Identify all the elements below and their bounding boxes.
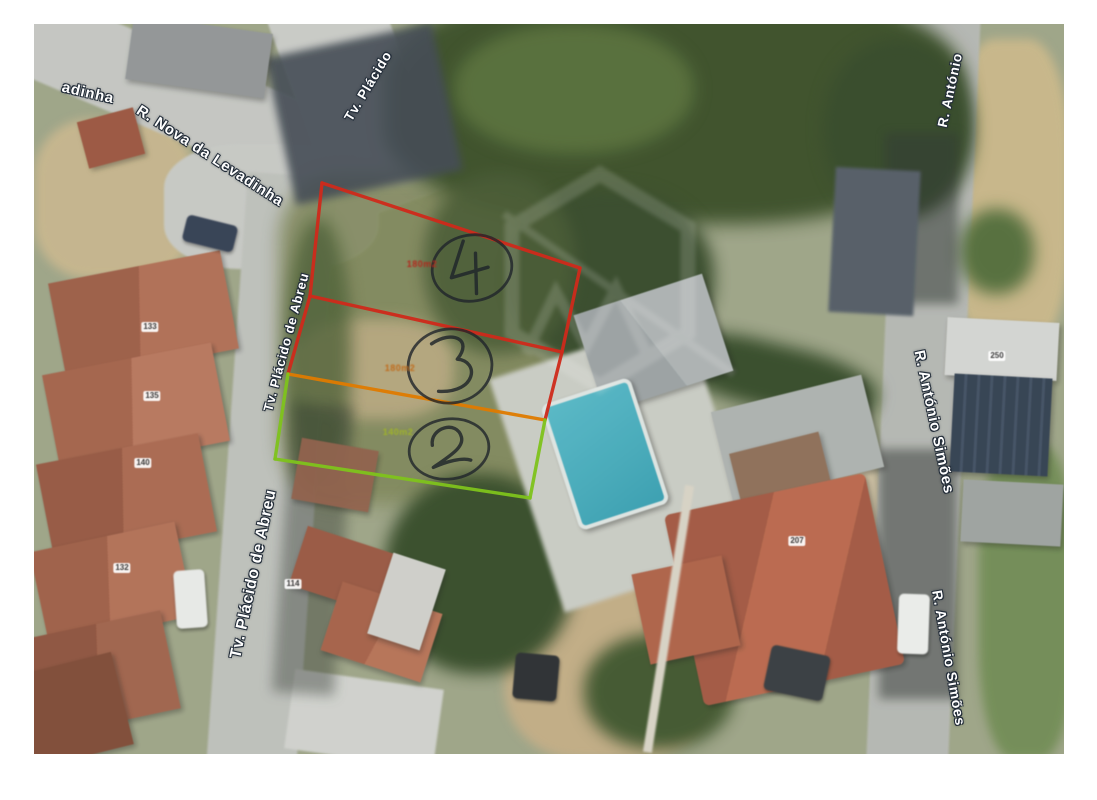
tree-mass-top-light: [454, 24, 694, 154]
building-roof-dark: [828, 167, 920, 316]
van: [897, 593, 930, 654]
aerial-photo: adinhaR. Nova da LevadinhaTv. PlácidoTv.…: [34, 24, 1064, 754]
building-roof: [945, 317, 1060, 381]
bush-right: [959, 209, 1034, 294]
van: [173, 569, 208, 629]
building-roof: [960, 479, 1063, 546]
aerial-scene: [34, 24, 1064, 754]
scan-page: adinhaR. Nova da LevadinhaTv. PlácidoTv.…: [0, 0, 1097, 800]
building-roof: [631, 555, 740, 664]
tree-lot4: [424, 174, 574, 354]
shed-roof: [291, 438, 379, 513]
car: [512, 652, 560, 702]
solar-panel-roof: [950, 374, 1053, 477]
